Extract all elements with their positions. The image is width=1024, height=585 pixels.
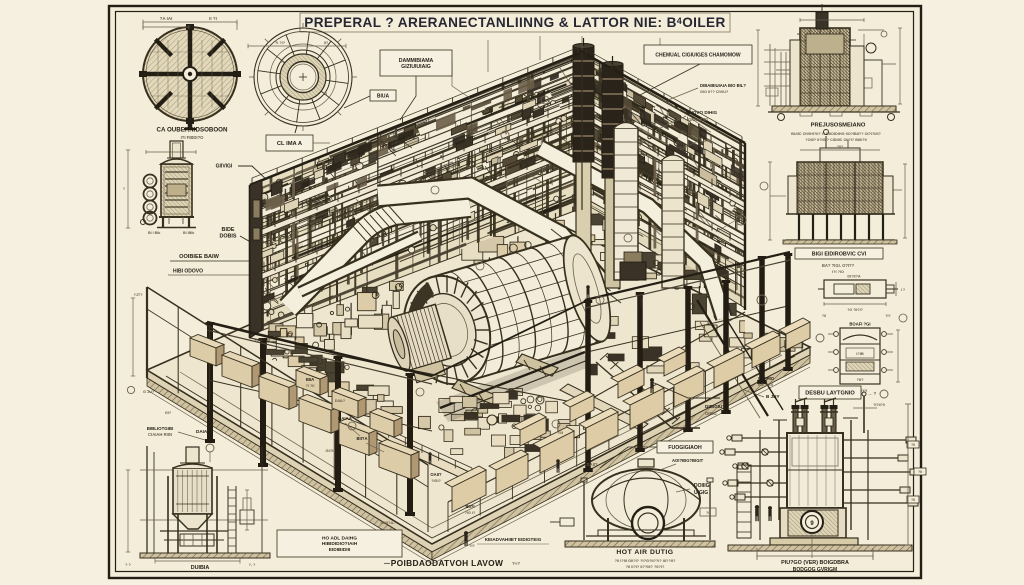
svg-text:I?I FIBDI?O: I?I FIBDI?O [181, 135, 205, 140]
svg-text:?I?: ?I? [885, 314, 890, 318]
svg-text:I ?: I ? [901, 288, 905, 292]
svg-text:DIBAIBIUIAIA BIO BIL?: DIBAIBIUIAIA BIO BIL? [700, 83, 746, 88]
svg-text:?≈?: ?≈? [512, 561, 520, 566]
svg-text:G?: G? [735, 152, 741, 157]
svg-text:?II: ?II [918, 470, 922, 474]
svg-text:DOIIIG: DOIIIG [694, 483, 710, 489]
svg-text:?II: ?II [911, 498, 915, 502]
svg-text:?I?: ?I? [469, 544, 474, 548]
svg-text:KEIADVAHIIET EIDIGTEIG: KEIADVAHIIET EIDIGTEIG [485, 537, 542, 542]
svg-text:DOBIS: DOBIS [219, 234, 236, 240]
svg-text:?III: ?III [557, 430, 563, 435]
svg-text:?I?II?II: ?I?II?II [873, 403, 885, 407]
svg-text:BII?I: BII?I [465, 504, 474, 509]
svg-text:DAMMIBIAMA: DAMMIBIAMA [399, 58, 434, 64]
svg-text:GI?: GI? [165, 411, 172, 415]
svg-text:?II I?III GII?I? ?I?G?II??I? I: ?II I?III GII?I? ?I?G?II??I? III??II? [615, 558, 676, 563]
svg-text:HO ADL DAIHG: HO ADL DAIHG [322, 535, 357, 541]
svg-text:?I ?I?: ?I ?I? [275, 41, 286, 45]
svg-text:DUIBIA: DUIBIA [191, 565, 210, 571]
svg-text:DI?II?A: DI?II?A [847, 275, 861, 279]
svg-text:BI I BIb: BI I BIb [148, 231, 161, 235]
svg-text:PREPERAL ? ARERANECTANLIINNG &: PREPERAL ? ARERANECTANLIINNG & LATTOR NI… [304, 15, 726, 30]
svg-text:DIBIGIUT: DIBIGIUT [705, 404, 725, 409]
svg-text:?OIII? II?IGI? CIDIIIC OII?I?: ?OIII? II?IGI? CIDIIIC OII?I? BIIII?II [805, 138, 866, 142]
svg-text:PREJUSOSMEIANO: PREJUSOSMEIANO [811, 123, 866, 129]
svg-text:HIBI ODOVO: HIBI ODOVO [173, 269, 203, 275]
svg-text:B JUY: B JUY [766, 394, 780, 399]
svg-text:CIAIAH RIIN: CIAIAH RIIN [148, 432, 172, 437]
svg-text:?III?: ?III? [254, 338, 263, 343]
svg-text:?II?: ?II? [837, 145, 844, 149]
svg-text:?I: ?I [280, 60, 283, 64]
svg-text:—: — [384, 561, 390, 567]
svg-text:?II?: ?II? [856, 377, 864, 382]
svg-text:BIDE: BIDE [222, 227, 235, 233]
svg-text:DIIA?: DIIA? [335, 398, 346, 403]
svg-text:DAIAA: DAIAA [196, 429, 211, 434]
svg-text:?A IAI: ?A IAI [160, 16, 173, 21]
svg-text:?II II?I? II??III? ?II?I?: ?II II?I? II??III? ?II?I? [626, 564, 665, 569]
svg-text:BII?A: BII?A [357, 436, 368, 441]
svg-text:DESBU LAYTGNIO: DESBU LAYTGNIO [805, 391, 855, 397]
svg-text:GAII?: GAII? [586, 462, 598, 467]
svg-text:?JT?: ?JT? [133, 293, 143, 297]
svg-text:CL IMA A: CL IMA A [277, 141, 303, 147]
svg-text:? ?: ? ? [125, 563, 131, 567]
svg-text:AOI?BIG?BIGIT: AOI?BIG?BIGIT [672, 458, 704, 463]
svg-text:II?: II? [324, 41, 329, 45]
svg-text:BI: BI [323, 92, 327, 96]
svg-text:II ?I: II ?I [209, 16, 217, 21]
svg-text:?II: ?II [706, 511, 710, 515]
svg-text:BI IBIb: BI IBIb [183, 231, 195, 235]
svg-text:BIUA: BIUA [377, 93, 390, 99]
svg-text:POIBDAODATVOH LAVOW: POIBDAODATVOH LAVOW [391, 558, 503, 568]
svg-text:CA OUBERNIDSOBOON: CA OUBERNIDSOBOON [157, 127, 228, 134]
svg-text:CHEMUAL CIGIUIGES CHAMOMOW: CHEMUAL CIGIUIGES CHAMOMOW [655, 52, 740, 58]
svg-text:OIPIG: OIPIG [705, 411, 717, 416]
svg-text:OOIBIEE BAIW: OOIBIEE BAIW [179, 254, 219, 260]
svg-text:GIOVO DIHIG: GIOVO DIHIG [688, 110, 718, 115]
svg-text:BIE BIGI: BIE BIGI [758, 383, 773, 387]
svg-text:BOAFI ?GI: BOAFI ?GI [849, 322, 870, 327]
svg-text:GIIII?A..: GIIII?A.. [380, 520, 395, 525]
svg-text:GIUIAIDIG: GIUIAIDIG [688, 117, 708, 122]
svg-text:I?IB: I?IB [856, 351, 864, 356]
svg-text:?IG I?: ?IG I? [465, 511, 476, 515]
svg-text:HIBIDIDIO?IAIH: HIBIDIDIO?IAIH [322, 541, 358, 547]
svg-text:BA? ?IGI. O?I??: BA? ?IGI. O?I?? [822, 263, 855, 268]
svg-text:?IGI?: ?IGI? [431, 479, 441, 483]
svg-text:GIIVIGI: GIIVIGI [216, 164, 233, 170]
svg-text:BIIA: BIIA [306, 377, 314, 382]
svg-text:?: ? [123, 187, 125, 191]
svg-text:?O ?II?I?: ?O ?II?I? [847, 308, 863, 312]
svg-text:GIZIUIUIAIG: GIZIUIUIAIG [401, 64, 431, 70]
svg-text:BIGI EIDIROBVIC CVI: BIGI EIDIROBVIC CVI [812, 251, 867, 257]
svg-text:L G?: L G? [700, 138, 710, 143]
svg-text:GIUIHIO: GIUIHIO [758, 376, 775, 381]
svg-text:PIU?GO (VER) BOIGDBRA: PIU?GO (VER) BOIGDBRA [781, 560, 849, 566]
svg-text:GI?II: GI?II [326, 448, 335, 453]
svg-text:BIBLIOTGIBI: BIBLIOTGIBI [147, 426, 174, 431]
svg-text:OAII?: OAII? [430, 472, 442, 477]
svg-text:HOT AIR DUTIG: HOT AIR DUTIG [616, 549, 673, 556]
svg-text:G JU?: G JU? [143, 390, 155, 394]
svg-text:BUIIC OIVIHI?II? I? DIIOIDIHG: BUIIC OIVIHI?II? I? DIIOIDIHG IIO?IBII??… [791, 132, 881, 136]
svg-text:UIGIG: UIGIG [694, 490, 708, 496]
svg-text:GIO II?? CIVIU?: GIO II?? CIVIU? [700, 90, 729, 94]
svg-text:?II: ?II [822, 314, 826, 318]
svg-text:→ ?: → ? [868, 391, 877, 396]
svg-text:?II: ?II [911, 443, 915, 447]
svg-text:?I ?II: ?I ?II [306, 384, 315, 388]
svg-text:FUOGIGIAOH: FUOGIGIAOH [668, 445, 702, 451]
svg-text:I?I ?IO: I?I ?IO [832, 270, 844, 274]
svg-text:BODGOG GVRIGM: BODGOG GVRIGM [793, 567, 837, 573]
svg-text:EIDIBIDIII: EIDIBIDIII [329, 547, 351, 553]
svg-text:?, ?: ?, ? [249, 563, 256, 567]
svg-text:BAIAA: BAIAA [338, 416, 353, 421]
